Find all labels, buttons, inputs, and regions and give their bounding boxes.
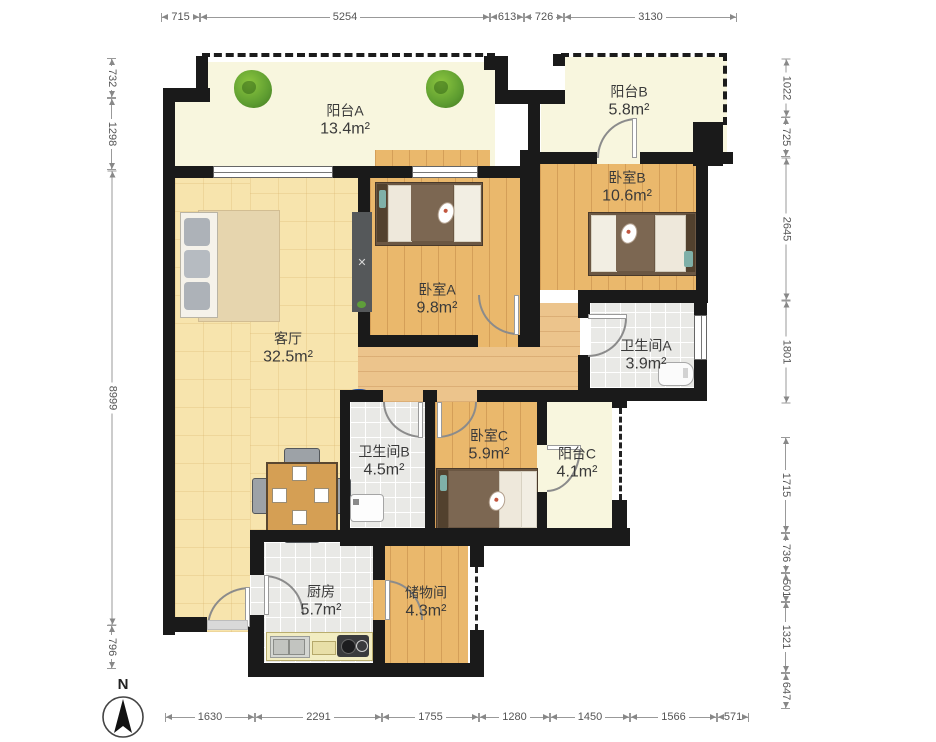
entrance-threshold bbox=[207, 620, 248, 630]
door-leaf bbox=[514, 295, 519, 335]
room-label-balcony-a: 阳台A13.4m² bbox=[320, 102, 370, 141]
door-leaf bbox=[588, 314, 627, 319]
wall bbox=[358, 335, 478, 347]
dimension: 2645 bbox=[777, 157, 795, 300]
room-label-balcony-c: 阳台C4.1m² bbox=[557, 445, 598, 484]
sofa-icon bbox=[180, 208, 280, 322]
window bbox=[694, 315, 707, 360]
wall bbox=[250, 615, 264, 663]
plant-icon bbox=[426, 70, 464, 108]
room-label-kitchen: 厨房5.7m² bbox=[301, 583, 342, 622]
wall bbox=[580, 290, 708, 303]
floor-balcony-a bbox=[175, 102, 207, 166]
dimension: 725 bbox=[777, 117, 795, 157]
wall bbox=[520, 150, 540, 347]
window-dashed bbox=[468, 567, 484, 630]
wall bbox=[518, 335, 532, 347]
dimension: 1630 bbox=[165, 708, 255, 726]
dimension: 1298 bbox=[103, 98, 121, 170]
wall bbox=[425, 402, 435, 528]
room-label-storage: 储物间4.3m² bbox=[405, 584, 447, 623]
bed-icon bbox=[375, 182, 483, 246]
bed-icon bbox=[436, 468, 538, 532]
dimension: 715 bbox=[161, 8, 200, 26]
window bbox=[213, 166, 333, 178]
wall bbox=[537, 492, 547, 528]
window-dashed bbox=[612, 408, 627, 500]
wall bbox=[373, 542, 385, 580]
room-label-bedroom-a: 卧室A9.8m² bbox=[417, 281, 458, 320]
dimension: 1755 bbox=[382, 708, 479, 726]
dimension: 1450 bbox=[550, 708, 630, 726]
dimension: 501 bbox=[777, 573, 795, 601]
room-label-bathroom-b: 卫生间B4.5m² bbox=[358, 443, 409, 482]
wall bbox=[175, 166, 213, 178]
wall bbox=[340, 390, 383, 402]
dimension: 2291 bbox=[255, 708, 382, 726]
wall bbox=[163, 88, 175, 635]
dining-table-icon bbox=[250, 448, 350, 542]
floor-deck-strip bbox=[375, 150, 490, 166]
dimension: 613 bbox=[490, 8, 524, 26]
wall bbox=[375, 166, 412, 178]
dimension: 1280 bbox=[479, 708, 550, 726]
dimension: 1321 bbox=[777, 601, 795, 673]
dimension: 732 bbox=[103, 58, 121, 98]
wall bbox=[553, 54, 565, 66]
wall bbox=[477, 390, 615, 402]
wall bbox=[250, 663, 484, 677]
wall bbox=[340, 402, 350, 528]
tv-cabinet-icon: ✕ bbox=[352, 212, 372, 312]
door-leaf bbox=[418, 402, 423, 438]
room-label-bedroom-c: 卧室C5.9m² bbox=[469, 427, 510, 466]
dimension: 1715 bbox=[777, 437, 795, 533]
bed-icon bbox=[588, 212, 698, 276]
dimension: 571 bbox=[717, 708, 749, 726]
wall bbox=[196, 56, 208, 102]
wall bbox=[694, 303, 707, 315]
compass-icon bbox=[100, 694, 146, 740]
wall bbox=[163, 617, 207, 632]
kitchen-counter bbox=[266, 632, 373, 661]
window bbox=[412, 166, 478, 178]
dimension: 726 bbox=[524, 8, 564, 26]
north-compass: N bbox=[100, 694, 146, 740]
dimension: 8999 bbox=[103, 170, 121, 625]
dimension: 5254 bbox=[200, 8, 490, 26]
room-label-bedroom-b: 卧室B10.6m² bbox=[602, 169, 652, 208]
dimension: 1022 bbox=[777, 58, 795, 117]
wall bbox=[478, 166, 528, 178]
dimension: 796 bbox=[103, 625, 121, 669]
wall bbox=[250, 530, 382, 542]
wall bbox=[470, 542, 484, 567]
north-label: N bbox=[118, 676, 129, 693]
wall bbox=[333, 166, 375, 178]
floor-plan: ✕ bbox=[0, 0, 936, 742]
wall bbox=[250, 542, 264, 575]
wall bbox=[540, 152, 597, 164]
dimension: 3130 bbox=[564, 8, 737, 26]
door-leaf bbox=[437, 402, 442, 438]
wall bbox=[537, 402, 547, 445]
room-label-bathroom-a: 卫生间A3.9m² bbox=[620, 337, 671, 376]
door-leaf bbox=[385, 580, 390, 620]
dimension: 647 bbox=[777, 673, 795, 709]
dimension: 1566 bbox=[630, 708, 717, 726]
room-label-living-room: 客厅32.5m² bbox=[263, 330, 313, 369]
dimension: 736 bbox=[777, 533, 795, 573]
door-leaf bbox=[632, 118, 637, 158]
door-leaf bbox=[264, 575, 269, 615]
washing-machine-icon bbox=[350, 494, 384, 522]
wall bbox=[528, 90, 540, 154]
plant-icon bbox=[234, 70, 272, 108]
dimension: 1801 bbox=[777, 300, 795, 403]
wall bbox=[696, 152, 708, 303]
wall bbox=[373, 620, 385, 663]
room-label-balcony-b: 阳台B5.8m² bbox=[609, 83, 650, 122]
balcony-a-open-edge bbox=[202, 53, 495, 61]
wall bbox=[423, 390, 437, 402]
